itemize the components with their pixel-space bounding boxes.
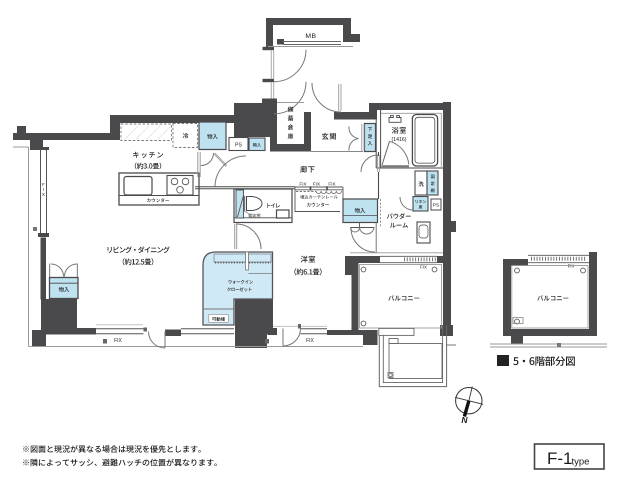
svg-text:F-1: F-1 <box>547 449 573 468</box>
svg-text:FIX: FIX <box>114 338 122 344</box>
svg-text:FIX: FIX <box>420 265 427 270</box>
svg-text:FIX: FIX <box>568 264 575 269</box>
svg-text:N: N <box>461 415 468 425</box>
svg-text:PS: PS <box>433 203 439 209</box>
svg-text:MB: MB <box>305 33 316 40</box>
svg-text:PS: PS <box>235 143 242 149</box>
svg-text:type: type <box>572 457 590 468</box>
svg-text:FIX: FIX <box>299 182 306 187</box>
svg-text:FIX: FIX <box>313 182 320 187</box>
svg-text:X: X <box>42 192 45 197</box>
svg-text:FIX: FIX <box>306 338 314 344</box>
svg-text:(1416): (1416) <box>392 137 407 143</box>
svg-text:FIX: FIX <box>328 182 335 187</box>
